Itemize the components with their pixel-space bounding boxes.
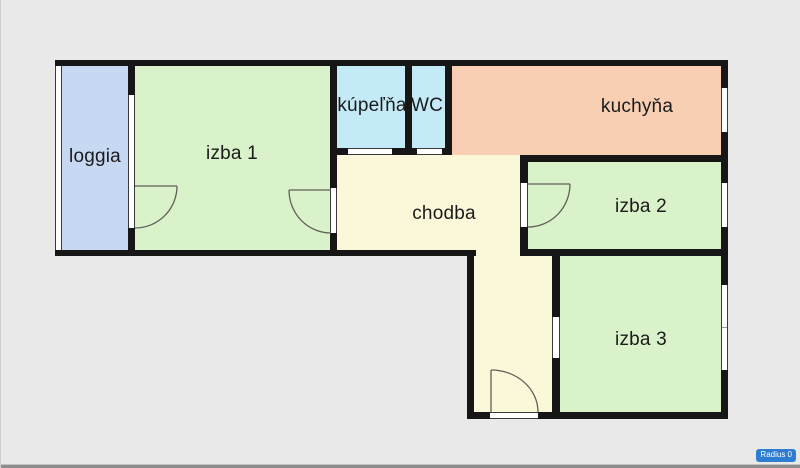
label-kuchyna: kuchyňa <box>601 96 673 118</box>
room-chodba-corridor <box>473 250 553 413</box>
wall-loggia-izba1-bottom <box>128 228 135 256</box>
room-chodba <box>336 148 521 250</box>
wall-izba3-left-top <box>552 249 560 317</box>
label-izba-3: izba 3 <box>615 329 667 351</box>
window-bottom-edge <box>0 464 800 468</box>
wall-extension-left <box>467 250 474 419</box>
door-opening-entrance <box>490 412 538 419</box>
label-izba-2: izba 2 <box>615 196 667 218</box>
window-izba3 <box>721 285 728 370</box>
door-opening-kupelna <box>348 148 392 155</box>
label-chodba: chodba <box>412 203 476 225</box>
door-opening-izba3 <box>552 317 560 358</box>
wall-wc-kuchyna <box>445 60 452 155</box>
room-kuchyna <box>451 66 722 155</box>
window-loggia-izba1 <box>128 95 135 228</box>
label-wc: WC <box>411 95 443 117</box>
wall-izba2-top <box>520 155 728 162</box>
floor-plan-viewer: loggia izba 1 kúpeľňa WC kuchyňa chodba … <box>0 0 800 468</box>
wall-kupelna-bottom-b <box>392 148 417 155</box>
window-izba2 <box>721 183 728 227</box>
wall-kupelna-bottom-c <box>442 148 452 155</box>
wall-loggia-izba1-top <box>128 60 135 95</box>
window-kuchyna <box>721 88 728 132</box>
wall-izba1-right-bottom <box>330 233 337 250</box>
wall-outer-top <box>55 60 728 66</box>
window-izba3-divider <box>722 327 727 328</box>
window-left-edge <box>0 0 1 468</box>
door-opening-wc <box>417 148 442 155</box>
wall-izba1-right-top <box>330 60 337 188</box>
wall-izba3-left-bottom <box>552 358 560 419</box>
radius-badge[interactable]: Radius 0 <box>756 449 796 462</box>
label-kupelna: kúpeľňa <box>337 95 406 117</box>
door-opening-izba1 <box>330 188 337 233</box>
label-loggia: loggia <box>69 146 121 168</box>
wall-izba2-left-top <box>520 155 528 183</box>
wall-outer-bottom-left <box>55 250 476 256</box>
wall-kupelna-bottom-a <box>330 148 348 155</box>
door-opening-izba2 <box>520 183 528 227</box>
label-izba-1: izba 1 <box>206 143 258 165</box>
window-loggia-glazing <box>55 66 62 250</box>
